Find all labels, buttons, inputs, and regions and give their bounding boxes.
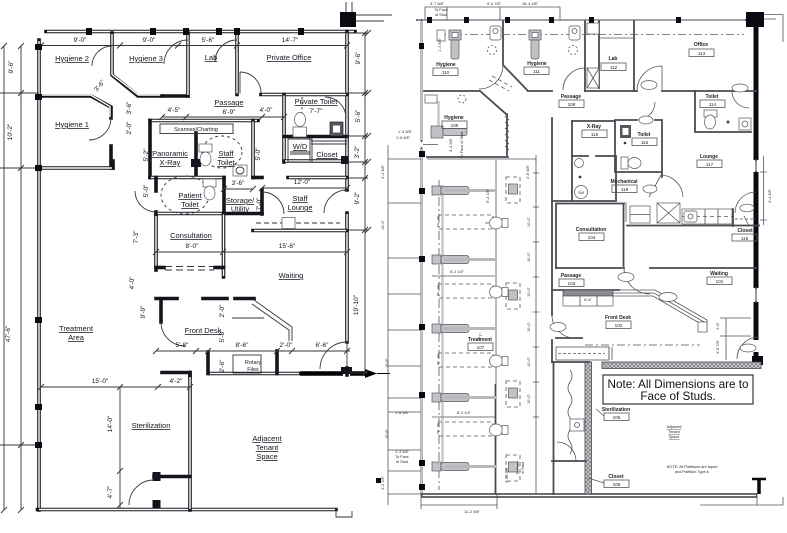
svg-text:Hygiene 1: Hygiene 1 <box>55 120 89 129</box>
svg-text:Adjacent: Adjacent <box>252 434 282 443</box>
svg-text:Tenant: Tenant <box>668 430 680 434</box>
svg-text:Toilet: Toilet <box>706 94 719 100</box>
svg-text:119: 119 <box>741 236 749 241</box>
svg-text:X-Ray: X-Ray <box>160 158 181 167</box>
svg-text:4'-5": 4'-5" <box>168 107 182 114</box>
svg-text:To Face: To Face <box>395 455 409 459</box>
svg-text:115: 115 <box>591 132 599 137</box>
svg-text:Front Desk: Front Desk <box>605 315 631 321</box>
svg-text:6'-2 1/4": 6'-2 1/4" <box>457 411 472 415</box>
svg-text:11'-2 5/8": 11'-2 5/8" <box>464 510 480 514</box>
svg-text:Scannex/Charting: Scannex/Charting <box>174 127 218 133</box>
svg-text:4'-9 5/8": 4'-9 5/8" <box>526 164 530 179</box>
svg-text:110: 110 <box>442 70 450 75</box>
svg-text:10'-0": 10'-0" <box>527 287 531 297</box>
svg-text:5'-0": 5'-0" <box>143 184 150 198</box>
svg-text:Closet: Closet <box>737 228 753 234</box>
svg-text:Files: Files <box>247 367 259 373</box>
svg-text:4'-2 1/8": 4'-2 1/8" <box>381 475 385 490</box>
svg-text:7'-0": 7'-0" <box>256 197 263 211</box>
svg-text:Closet: Closet <box>316 150 338 159</box>
svg-text:Space: Space <box>669 435 680 439</box>
svg-text:101: 101 <box>716 279 724 284</box>
svg-text:2'-6": 2'-6" <box>219 359 226 373</box>
svg-text:3'-6": 3'-6" <box>232 180 246 187</box>
svg-text:and Partition Type A: and Partition Type A <box>675 470 709 474</box>
svg-text:2'-0": 2'-0" <box>280 342 294 349</box>
svg-text:Tenant: Tenant <box>256 443 279 452</box>
svg-text:5'-2": 5'-2" <box>143 148 150 162</box>
svg-text:6'-9": 6'-9" <box>223 109 237 116</box>
svg-text:14'-0": 14'-0" <box>107 415 114 432</box>
svg-text:4'-0": 4'-0" <box>260 107 274 114</box>
svg-text:19'-10": 19'-10" <box>353 294 360 315</box>
svg-text:14'-7": 14'-7" <box>282 37 299 44</box>
svg-text:4'-0": 4'-0" <box>129 276 136 290</box>
svg-text:3'-7 5/8": 3'-7 5/8" <box>430 2 445 6</box>
svg-text:4'-4 3/8": 4'-4 3/8" <box>768 188 772 203</box>
svg-text:Hygiene 2: Hygiene 2 <box>55 54 89 63</box>
svg-text:Front Desk: Front Desk <box>185 326 222 335</box>
svg-text:Mechanical: Mechanical <box>611 179 639 185</box>
svg-text:9'-9": 9'-9" <box>140 305 147 319</box>
svg-text:108: 108 <box>568 102 576 107</box>
svg-text:Hygiene: Hygiene <box>444 115 464 121</box>
svg-text:Office: Office <box>694 42 708 48</box>
svg-text:To Face: To Face <box>516 461 520 475</box>
svg-text:1'-4 5/8": 1'-4 5/8" <box>398 130 413 134</box>
svg-text:2'-0": 2'-0" <box>126 121 133 135</box>
svg-text:Passage: Passage <box>214 98 243 107</box>
svg-text:Lab: Lab <box>205 53 218 62</box>
svg-text:Hygiene: Hygiene <box>436 62 456 68</box>
svg-text:Rotary: Rotary <box>245 360 261 366</box>
svg-text:5'-8": 5'-8" <box>176 342 190 349</box>
svg-text:47'-6": 47'-6" <box>5 325 12 342</box>
svg-text:NOTE: All Partitions are taped: NOTE: All Partitions are taped <box>667 465 718 469</box>
svg-text:Sterilization: Sterilization <box>132 421 171 430</box>
svg-text:12'-0": 12'-0" <box>294 179 311 186</box>
svg-text:Consultation: Consultation <box>576 227 607 233</box>
svg-text:10'-0": 10'-0" <box>527 322 531 332</box>
svg-text:10'-0": 10'-0" <box>527 357 531 367</box>
svg-text:9'-6": 9'-6" <box>8 60 15 74</box>
svg-text:Closet: Closet <box>608 474 624 480</box>
svg-text:2'-0": 2'-0" <box>219 304 226 318</box>
svg-text:6'-6": 6'-6" <box>316 342 330 349</box>
svg-text:112: 112 <box>610 65 618 70</box>
svg-text:Private Toilet: Private Toilet <box>295 97 339 106</box>
svg-text:105: 105 <box>613 415 621 420</box>
svg-text:3'-6": 3'-6" <box>126 101 133 115</box>
svg-text:5'-6": 5'-6" <box>355 109 362 123</box>
svg-text:of Stud: of Stud <box>396 460 408 464</box>
svg-text:Private Office: Private Office <box>267 53 312 62</box>
svg-text:To Face: To Face <box>434 8 448 12</box>
svg-text:9'-6": 9'-6" <box>355 51 362 65</box>
svg-text:Hygiene: Hygiene <box>527 61 547 67</box>
svg-text:116: 116 <box>641 140 649 145</box>
svg-text:Area: Area <box>68 333 85 342</box>
svg-text:Toilet: Toilet <box>181 200 199 209</box>
svg-text:Hygiene 3: Hygiene 3 <box>129 54 163 63</box>
svg-text:8'-0": 8'-0" <box>186 243 200 250</box>
svg-text:102: 102 <box>615 323 623 328</box>
svg-text:Lounge: Lounge <box>700 154 718 160</box>
svg-text:8'-6": 8'-6" <box>236 342 250 349</box>
svg-text:Adjacent: Adjacent <box>667 425 683 429</box>
svg-text:114: 114 <box>709 102 717 107</box>
svg-text:Utility: Utility <box>231 205 250 214</box>
svg-text:6'-6": 6'-6" <box>584 298 592 302</box>
svg-text:16'-4 1/8": 16'-4 1/8" <box>522 2 539 6</box>
svg-text:Waiting: Waiting <box>710 271 728 277</box>
svg-text:4'-4 3/8": 4'-4 3/8" <box>381 164 385 179</box>
svg-text:Staff: Staff <box>218 149 234 158</box>
svg-text:107: 107 <box>477 345 485 350</box>
svg-text:7'-7": 7'-7" <box>310 108 324 115</box>
svg-text:Passage: Passage <box>561 273 582 279</box>
svg-text:Waiting: Waiting <box>279 271 304 280</box>
svg-text:SW: SW <box>578 191 585 195</box>
svg-text:Consultation: Consultation <box>170 231 212 240</box>
svg-text:111: 111 <box>533 69 540 74</box>
svg-text:9'-4 7/8": 9'-4 7/8" <box>487 2 502 6</box>
svg-text:Patient: Patient <box>178 191 202 200</box>
svg-text:10'-0": 10'-0" <box>527 217 531 227</box>
svg-text:103: 103 <box>568 281 576 286</box>
svg-text:15'-6": 15'-6" <box>279 243 296 250</box>
svg-text:4'-7": 4'-7" <box>107 485 114 499</box>
svg-text:Passage: Passage <box>561 94 582 100</box>
svg-text:To Face of Stud: To Face of Stud <box>460 132 464 159</box>
svg-text:Toilet: Toilet <box>638 132 651 138</box>
svg-text:104: 104 <box>588 235 596 240</box>
svg-text:5'-6": 5'-6" <box>202 37 216 44</box>
svg-text:Sterilization: Sterilization <box>602 407 630 413</box>
svg-text:W/D: W/D <box>293 142 308 151</box>
svg-text:9'-0": 9'-0" <box>143 37 157 44</box>
svg-text:1'-6 5/8": 1'-6 5/8" <box>395 411 410 415</box>
svg-text:Staff: Staff <box>292 194 308 203</box>
svg-text:9'-2": 9'-2" <box>354 191 361 205</box>
svg-text:4'-2": 4'-2" <box>170 378 184 385</box>
svg-text:118: 118 <box>621 187 629 192</box>
svg-text:5'-0": 5'-0" <box>255 147 262 161</box>
svg-text:117: 117 <box>706 162 714 167</box>
svg-text:10'-0": 10'-0" <box>527 394 531 404</box>
svg-text:1'-6 5/8": 1'-6 5/8" <box>396 136 411 140</box>
svg-text:9'-0": 9'-0" <box>74 37 88 44</box>
svg-text:10'-6": 10'-6" <box>385 429 389 439</box>
svg-text:Treatment: Treatment <box>59 324 94 333</box>
svg-text:Panoramic: Panoramic <box>152 149 188 158</box>
svg-text:113: 113 <box>698 51 706 56</box>
svg-text:3'-10 3/8": 3'-10 3/8" <box>505 466 509 483</box>
svg-text:Lounge: Lounge <box>287 203 312 212</box>
svg-text:4'-5 7/8": 4'-5 7/8" <box>716 339 720 354</box>
svg-text:15'-0": 15'-0" <box>92 378 109 385</box>
svg-text:10'-0": 10'-0" <box>527 252 531 262</box>
svg-text:2'-6": 2'-6" <box>716 322 720 330</box>
svg-text:X-Ray: X-Ray <box>587 124 601 130</box>
svg-text:1'-4 5/8": 1'-4 5/8" <box>438 37 442 52</box>
svg-text:7'-3": 7'-3" <box>133 230 140 244</box>
svg-text:of Stud: of Stud <box>435 13 447 17</box>
svg-text:106: 106 <box>613 482 621 487</box>
svg-text:5'-8": 5'-8" <box>219 329 226 343</box>
svg-text:of Stud: of Stud <box>521 462 525 474</box>
svg-text:Toilet: Toilet <box>217 158 235 167</box>
svg-text:10'-0": 10'-0" <box>381 220 385 230</box>
svg-text:9'-3 1/8": 9'-3 1/8" <box>486 188 490 203</box>
svg-text:6'-2 1/4": 6'-2 1/4" <box>450 270 465 274</box>
svg-text:Lab: Lab <box>609 56 618 62</box>
svg-text:3'-2": 3'-2" <box>354 145 361 159</box>
svg-text:1'-3 5/8": 1'-3 5/8" <box>395 450 410 454</box>
svg-text:3'-4 5/8": 3'-4 5/8" <box>449 137 453 152</box>
svg-text:Space: Space <box>256 452 277 461</box>
svg-text:10'-6": 10'-6" <box>385 358 389 368</box>
svg-text:Face of Studs.: Face of Studs. <box>640 390 715 403</box>
svg-text:109: 109 <box>451 123 459 128</box>
svg-text:10'-2": 10'-2" <box>7 123 14 140</box>
